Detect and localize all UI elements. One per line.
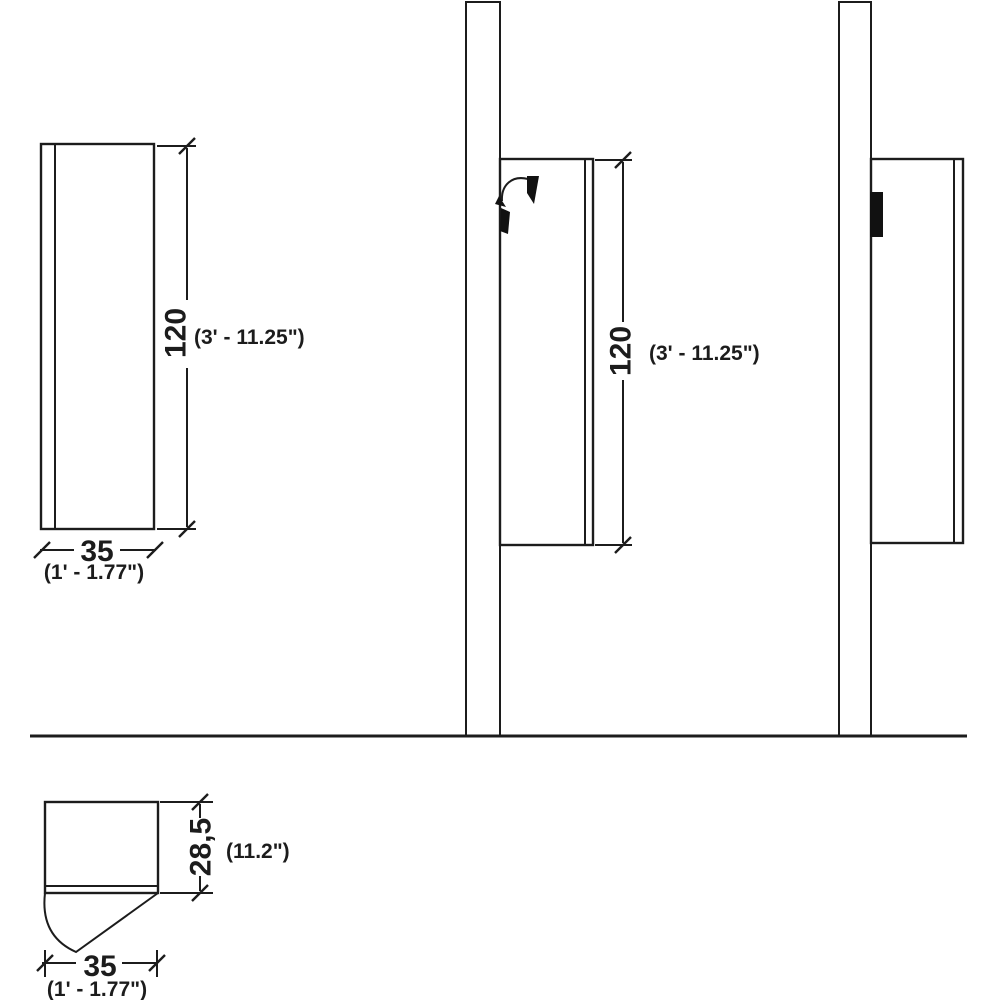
- mounting-post-outline: [466, 2, 500, 736]
- rear-view-cabinet-outline: [871, 159, 963, 543]
- side-height-alt-value: (3' - 11.25"): [649, 342, 760, 365]
- front-height-alt-value: (3' - 11.25"): [194, 326, 305, 349]
- front-width-alt-value: (1' - 1.77"): [44, 561, 144, 584]
- side-view: 120 (3' - 11.25"): [466, 2, 760, 736]
- front-width-dimension: 35 (1' - 1.77"): [34, 535, 163, 584]
- rear-view: [839, 2, 963, 736]
- side-view-cabinet-outline: [500, 159, 593, 545]
- front-height-value: 120: [160, 308, 193, 358]
- section-depth-dimension: 28,5 (11.2"): [160, 794, 290, 901]
- front-height-dimension: 120 (3' - 11.25"): [157, 138, 305, 537]
- section-depth-value: 28,5: [185, 818, 218, 876]
- mounting-bracket-icon: [870, 192, 883, 237]
- section-view: 28,5 (11.2") 35 (1' - 1.77"): [37, 794, 290, 1000]
- side-height-value: 120: [605, 326, 638, 376]
- section-width-dimension: 35 (1' - 1.77"): [37, 950, 165, 1000]
- mounting-post-outline: [839, 2, 871, 736]
- section-depth-alt-value: (11.2"): [226, 840, 290, 863]
- technical-drawing-page: 120 (3' - 11.25") 35 (1' - 1.77"): [0, 0, 1000, 1000]
- front-view: 120 (3' - 11.25") 35 (1' - 1.77"): [34, 138, 305, 584]
- section-body-outline: [45, 802, 158, 893]
- section-width-alt-value: (1' - 1.77"): [47, 978, 147, 1000]
- flap-open-swing-outline: [44, 893, 158, 952]
- front-view-cabinet-outline: [41, 144, 154, 529]
- side-height-dimension: 120 (3' - 11.25"): [595, 152, 760, 553]
- technical-drawing-canvas: 120 (3' - 11.25") 35 (1' - 1.77"): [0, 0, 1000, 1000]
